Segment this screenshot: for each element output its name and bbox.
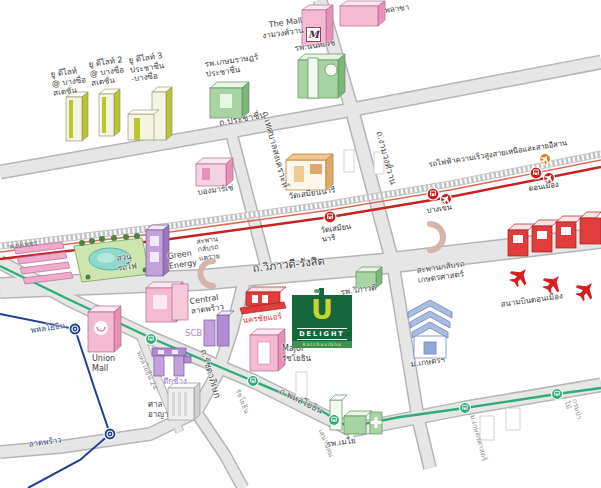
- building-nakhonchai-air: [240, 287, 286, 314]
- logo-subtitle: Ratchavibha: [292, 341, 352, 348]
- building-u-delight-2: [99, 89, 120, 136]
- shopping-bag-icon: [94, 321, 108, 335]
- label-u-delight-2: ยู ดีไลท์ 2 @ บางซื่อ สเตชั่น: [88, 55, 126, 88]
- label-union-mall: Union Mall: [92, 354, 115, 373]
- building-criminal-court: [168, 383, 200, 420]
- building-tuk-chang: [152, 348, 191, 376]
- the-mall-logo: M: [306, 27, 321, 42]
- label-u-delight-3: ยู ดีไลท์ 3 ประชาชื่น -บางซื่อ: [128, 51, 166, 84]
- building-plaza: [340, 1, 385, 26]
- logo-leaf-icon: [314, 289, 320, 293]
- building-u-delight-1: [66, 92, 88, 141]
- building-wat-samian-nari: [286, 154, 333, 190]
- building-mayo-hospital: [330, 395, 382, 434]
- location-map: ยู ดีไลท์ @ บางซื่อ สเตชั่น ยู ดีไลท์ 2 …: [0, 0, 601, 488]
- station-icon-wat-samian-nari: [324, 211, 336, 223]
- road-ngamwongwan: [352, 110, 393, 264]
- station-icon-don-mueang: [530, 167, 542, 179]
- label-tuk-chang: ตึกช้าง: [163, 377, 187, 387]
- logo-u: U: [292, 296, 352, 323]
- station-icon-sena-nikhom: [329, 415, 340, 426]
- building-major-ratchayothin: [250, 329, 285, 371]
- label-u-delight-1: ยู ดีไลท์ @ บางซื่อ สเตชั่น: [50, 65, 88, 98]
- station-icon-ratchayothin: [248, 376, 259, 387]
- station-icon-mrt-phahonyothin: [69, 323, 81, 335]
- label-criminal-court: ศาล อาญา: [148, 400, 169, 419]
- label-green-energy: Green Energy: [167, 248, 197, 271]
- label-khae-rai-bridge: สะพาน กลับรถ แคราย: [196, 235, 221, 263]
- road-ladprao-branch: [196, 412, 243, 488]
- building-kasetsart-university: [408, 300, 452, 358]
- logo-wordmark: DELIGHT: [297, 328, 347, 340]
- label-suan-rotfai: สวน รถไฟ: [116, 251, 137, 273]
- road-thetsaban-songkhro: [231, 132, 266, 266]
- station-icon-forest-department: [552, 389, 563, 400]
- suan-rotfai-park: [74, 233, 150, 282]
- building-green-energy: [146, 225, 169, 276]
- building-bon-marche: [196, 158, 233, 186]
- station-icon-mrt-lat-phrao: [104, 428, 116, 440]
- station-icon-kasetsart-university: [460, 403, 471, 414]
- station-icon-bang-khen: [427, 188, 439, 200]
- label-scb: SCB: [185, 328, 202, 338]
- u-delight-logo: U DELIGHT Ratchavibha: [292, 288, 352, 350]
- building-central-ladprao: [146, 282, 188, 322]
- building-u-delight-3: [128, 87, 172, 140]
- building-nonthavej-hospital: [298, 54, 345, 98]
- station-icon-phahonyothin-24: [146, 334, 157, 345]
- u-turn-ramp-kasetsart: [430, 224, 443, 250]
- building-union-mall: [88, 306, 121, 352]
